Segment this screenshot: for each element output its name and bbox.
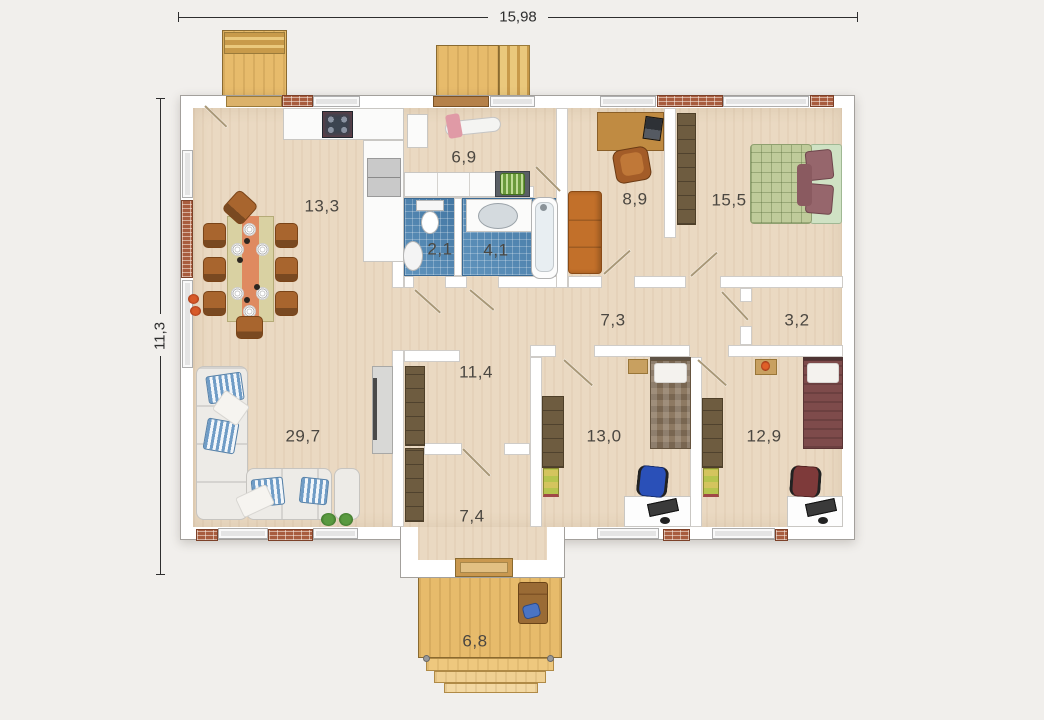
dimension-tick — [857, 12, 858, 22]
window — [313, 96, 360, 107]
pillow — [807, 363, 839, 383]
wall — [634, 276, 686, 288]
wall — [454, 198, 462, 276]
wardrobe — [702, 398, 723, 468]
wc-washbasin — [403, 241, 423, 271]
room-label-hallway: 7,3 — [600, 312, 625, 329]
brick-pier — [657, 95, 723, 107]
bowl — [244, 297, 250, 303]
flower-pot — [188, 294, 199, 304]
plate — [243, 223, 256, 236]
room-label-bedroom-two: 12,9 — [746, 428, 781, 445]
window — [597, 528, 659, 539]
dimension-tick — [156, 574, 165, 575]
wall — [690, 357, 702, 527]
window — [182, 150, 193, 198]
potted-plant — [339, 513, 353, 526]
bowl — [237, 257, 243, 263]
wall — [594, 345, 690, 357]
plate — [256, 243, 269, 256]
dining-chair — [275, 223, 298, 248]
orange-sofa — [568, 191, 602, 274]
room-label-wc: 2,1 — [427, 241, 452, 258]
plate — [231, 287, 244, 300]
wall — [568, 276, 602, 288]
porch-step-1 — [426, 658, 554, 671]
wall — [445, 276, 467, 288]
window — [600, 96, 656, 107]
brick-pier — [181, 200, 193, 278]
dining-chair — [236, 316, 263, 339]
porch-bolt — [423, 655, 430, 662]
tv-screen — [373, 378, 377, 440]
dimension-line-top — [178, 17, 488, 18]
dimension-line-top — [548, 17, 858, 18]
brick-pier — [775, 529, 788, 541]
bowl — [254, 284, 260, 290]
back-deck-left-slats — [224, 32, 285, 54]
wall — [740, 326, 752, 345]
deck-door-threshold — [226, 96, 282, 107]
entrance-door-leaf — [460, 562, 508, 573]
bowl — [244, 238, 250, 244]
dining-chair — [275, 291, 298, 316]
room-label-utility: 6,9 — [451, 149, 476, 166]
wardrobe — [677, 113, 696, 225]
wardrobe — [405, 448, 424, 522]
wall — [530, 357, 542, 527]
room-label-dining-kitchen: 13,3 — [304, 198, 339, 215]
dining-chair — [203, 223, 226, 248]
wall — [504, 443, 530, 455]
brick-pier — [282, 95, 313, 107]
room-label-entry: 7,4 — [459, 508, 484, 525]
wall — [404, 350, 460, 362]
wall — [664, 108, 676, 238]
bathtub-inner — [535, 202, 554, 272]
window — [490, 96, 535, 107]
office-chair-seat — [619, 151, 644, 176]
bathtub-faucet — [540, 204, 547, 211]
stove — [322, 111, 353, 138]
mouse — [818, 517, 828, 524]
porch-step-2 — [434, 671, 546, 683]
refrigerator — [367, 158, 401, 197]
brick-pier — [268, 529, 313, 541]
wall — [720, 276, 843, 288]
back-deck-right-steps — [499, 45, 530, 96]
desk-chair-blue — [635, 464, 669, 498]
dining-chair — [275, 257, 298, 282]
room-label-living-room: 29,7 — [285, 428, 320, 445]
window — [723, 96, 809, 107]
window — [218, 528, 268, 539]
bathroom-washbasin — [478, 203, 518, 229]
shelf-unit — [703, 468, 719, 497]
porch-bolt — [547, 655, 554, 662]
toilet-tank — [416, 200, 444, 211]
wall — [424, 443, 462, 455]
dimension-line-left — [160, 98, 161, 314]
wall — [530, 345, 556, 357]
room-label-master-bedroom: 15,5 — [711, 192, 746, 209]
toilet-bowl — [421, 211, 439, 234]
room-label-bathroom: 4,1 — [483, 242, 508, 259]
laundry-basket — [500, 173, 525, 195]
utility-cabinet-row — [404, 172, 501, 197]
deck-door-threshold — [433, 96, 489, 107]
wardrobe — [405, 366, 425, 446]
wall — [392, 350, 404, 527]
bed-throw — [797, 164, 812, 206]
desk-chair-red — [789, 465, 822, 498]
entry-floor-extension — [418, 527, 547, 560]
dimension-tick — [156, 98, 165, 99]
room-label-hall: 11,4 — [459, 364, 493, 381]
dining-chair — [203, 257, 226, 282]
room-label-office: 8,9 — [622, 191, 647, 208]
floor-plan: 13,3 6,9 2,1 4,1 8,9 15,5 7,3 3,2 11,4 1… — [0, 0, 1044, 720]
brick-pier — [196, 529, 218, 541]
nightstand-item — [761, 361, 770, 371]
window — [313, 528, 358, 539]
wall — [740, 288, 752, 302]
room-label-bedroom-one: 13,0 — [586, 428, 621, 445]
striped-pillow — [299, 477, 330, 506]
window — [712, 528, 775, 539]
flower-pot — [190, 306, 201, 316]
plate — [231, 243, 244, 256]
brick-pier — [663, 529, 690, 541]
potted-plant — [321, 513, 336, 526]
nightstand — [628, 359, 648, 374]
dimension-height-label: 11,3 — [152, 322, 169, 350]
porch-step-3 — [444, 683, 538, 693]
shelf-unit — [543, 468, 559, 497]
back-deck-right — [436, 45, 499, 96]
dimension-tick — [178, 12, 179, 22]
mouse — [660, 517, 670, 524]
wall — [728, 345, 843, 357]
utility-cabinet — [407, 114, 428, 148]
laptop — [642, 116, 663, 141]
pillow — [654, 363, 687, 383]
brick-pier — [810, 95, 834, 107]
wall — [404, 276, 414, 288]
room-label-porch: 6,8 — [462, 633, 487, 650]
dimension-width-label: 15,98 — [499, 9, 537, 26]
dimension-line-left — [160, 356, 161, 574]
dining-chair — [203, 291, 226, 316]
room-label-closet: 3,2 — [784, 312, 809, 329]
wardrobe — [542, 396, 564, 468]
